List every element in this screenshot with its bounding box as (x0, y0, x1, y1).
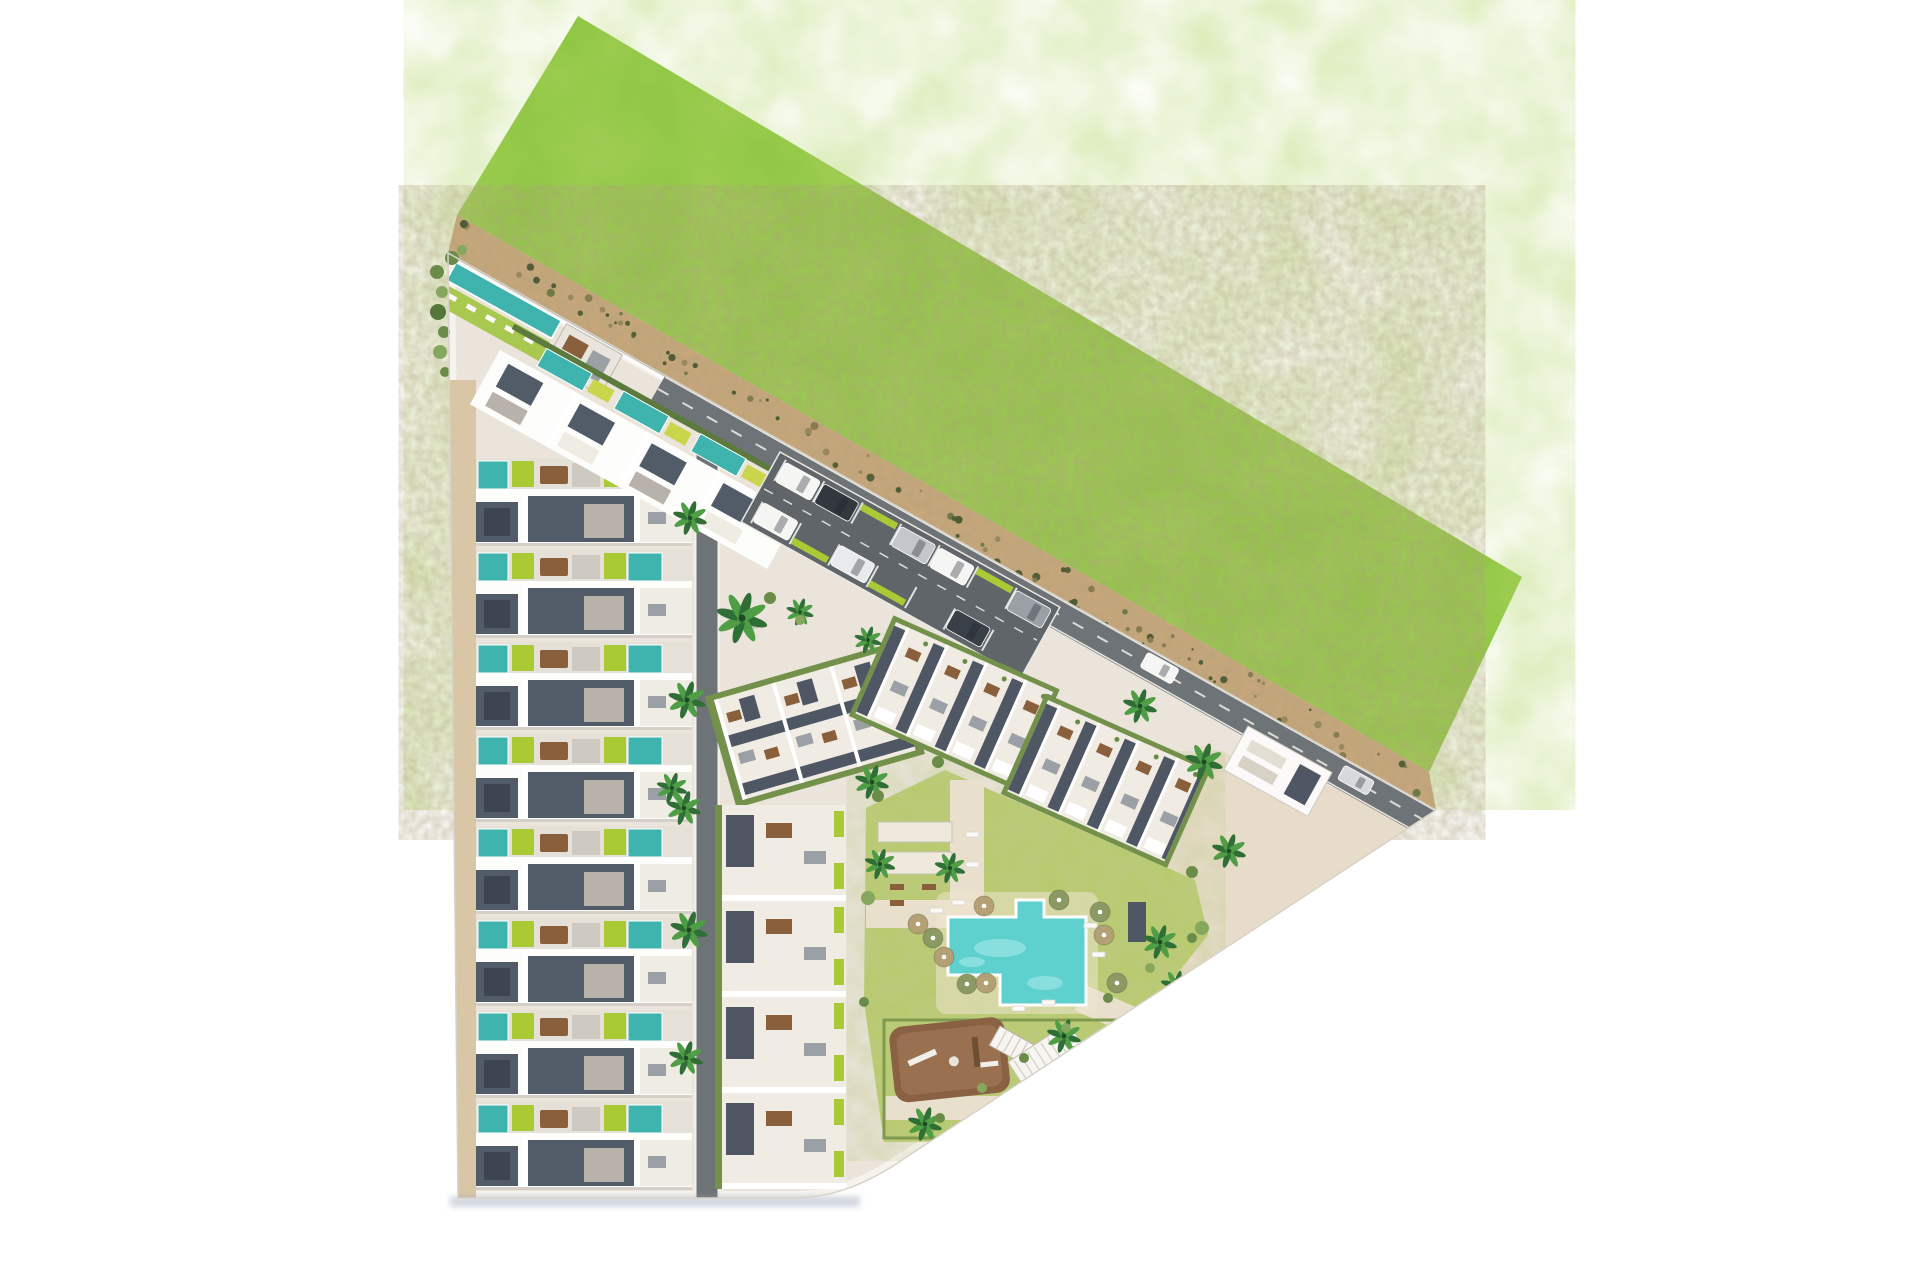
terrace-furniture (648, 972, 666, 984)
bush (932, 756, 944, 768)
playground (888, 1016, 1011, 1104)
sunbed (1092, 952, 1105, 957)
terrace-furniture (804, 1139, 826, 1152)
dining-set (766, 1015, 792, 1030)
sunbed (966, 862, 979, 867)
west-sidewalk (448, 380, 476, 1198)
turf-patch (512, 829, 534, 855)
private-pool (478, 1105, 508, 1133)
aerial-site-plan (0, 0, 1920, 1280)
turf-patch (604, 829, 626, 855)
turf-patch (512, 1013, 534, 1039)
stair-core (726, 815, 754, 867)
private-pool (628, 645, 662, 673)
stairwell (484, 692, 510, 720)
sunbed (1012, 1006, 1025, 1011)
private-pool (628, 553, 662, 581)
turf-patch (604, 645, 626, 671)
bush (859, 997, 869, 1007)
terrace-furniture (648, 604, 666, 616)
dining-set (540, 926, 568, 944)
turf-patch (834, 1055, 844, 1081)
dining-set (766, 919, 792, 934)
roof-terrace (584, 1056, 624, 1090)
parasol (1107, 973, 1127, 993)
terrace-furniture (648, 696, 666, 708)
stairwell (484, 876, 510, 904)
sunbed (952, 900, 965, 905)
stairwell (484, 1152, 510, 1180)
stairwell (484, 968, 510, 996)
turf-patch (604, 921, 626, 947)
stairwell (484, 1060, 510, 1088)
private-pool (628, 1105, 662, 1133)
roof-terrace (584, 504, 624, 538)
turf-patch (834, 1003, 844, 1029)
turf-patch (834, 1151, 844, 1177)
hedge-border (715, 805, 722, 1189)
hedge-bush (433, 345, 447, 359)
site-plan-svg (0, 0, 1920, 1280)
stair-core (726, 1007, 754, 1059)
turf-patch (512, 1105, 534, 1131)
terrace-furniture (804, 947, 826, 960)
roof-terrace (584, 596, 624, 630)
bush (795, 615, 805, 625)
hedge-bush (430, 265, 444, 279)
turf-patch (512, 737, 534, 763)
sunbed (1084, 923, 1097, 928)
bush (1019, 1053, 1029, 1063)
parasol (1090, 902, 1110, 922)
sunbed (930, 908, 943, 913)
turf-patch (604, 1105, 626, 1131)
picnic-bench (922, 884, 936, 890)
turf-patch (834, 1099, 844, 1125)
shade-pergola (1128, 902, 1146, 942)
parasol (974, 896, 994, 916)
turf-patch (834, 863, 844, 889)
turf-patch (604, 553, 626, 579)
private-pool (478, 829, 508, 857)
bush (977, 1083, 987, 1093)
private-pool (628, 1013, 662, 1041)
dining-set (540, 1110, 568, 1128)
private-pool (478, 737, 508, 765)
picnic-bench (890, 884, 904, 890)
turf-patch (604, 1013, 626, 1039)
roof-terrace (584, 872, 624, 906)
stair-core (726, 911, 754, 963)
apartment-block-south (715, 805, 846, 1189)
terrace-furniture (648, 1064, 666, 1076)
bush (861, 891, 875, 905)
parasol (1049, 890, 1069, 910)
stair-core (726, 1103, 754, 1155)
picnic-bench (890, 900, 904, 906)
dining-set (540, 1018, 568, 1036)
dining-set (540, 834, 568, 852)
parasol (976, 973, 996, 993)
sunbed (1042, 1000, 1055, 1005)
turf-patch (512, 645, 534, 671)
dining-set (766, 1111, 792, 1126)
private-pool (628, 921, 662, 949)
turf-patch (834, 811, 844, 837)
dining-set (540, 650, 568, 668)
dining-set (540, 742, 568, 760)
pool-ripple (974, 939, 1026, 957)
stairwell (484, 784, 510, 812)
dining-set (766, 823, 792, 838)
parasol (934, 947, 954, 967)
terrace-furniture (804, 1043, 826, 1056)
turf-patch (834, 907, 844, 933)
parasol (957, 974, 977, 994)
bush (1061, 1023, 1071, 1033)
terrace-furniture (648, 880, 666, 892)
bush (1145, 963, 1155, 973)
pool-ripple (1027, 976, 1063, 990)
pergola-strip (878, 822, 952, 842)
dining-set (540, 466, 568, 484)
roof-terrace (584, 780, 624, 814)
private-pool (478, 553, 508, 581)
pool-ripple (959, 957, 985, 967)
bush (1103, 993, 1113, 1003)
bush (935, 1113, 945, 1123)
dining-set (540, 558, 568, 576)
hedge-bush (457, 245, 467, 255)
turf-patch (512, 553, 534, 579)
roof-terrace (584, 688, 624, 722)
bush (1187, 933, 1197, 943)
hedge-bush (430, 304, 446, 320)
bush (764, 592, 776, 604)
turf-patch (604, 737, 626, 763)
bush (1195, 921, 1209, 935)
turf-patch (512, 921, 534, 947)
terrace-furniture (648, 512, 666, 524)
private-pool (478, 1013, 508, 1041)
bush (1186, 866, 1198, 878)
parasol (908, 914, 928, 934)
private-pool (628, 737, 662, 765)
bush (872, 790, 884, 802)
roof-terrace (584, 964, 624, 998)
private-pool (478, 921, 508, 949)
private-pool (478, 645, 508, 673)
turf-patch (512, 461, 534, 487)
private-pool (628, 829, 662, 857)
hedge-bush (436, 286, 448, 298)
roof-terrace (584, 1148, 624, 1182)
private-pool (478, 461, 508, 489)
sunbed (966, 832, 979, 837)
stairwell (484, 508, 510, 536)
terrace-furniture (648, 1156, 666, 1168)
bush (1146, 1000, 1158, 1012)
terrace-furniture (804, 851, 826, 864)
turf-patch (834, 959, 844, 985)
stairwell (484, 600, 510, 628)
parasol (923, 928, 943, 948)
parasol (1094, 925, 1114, 945)
